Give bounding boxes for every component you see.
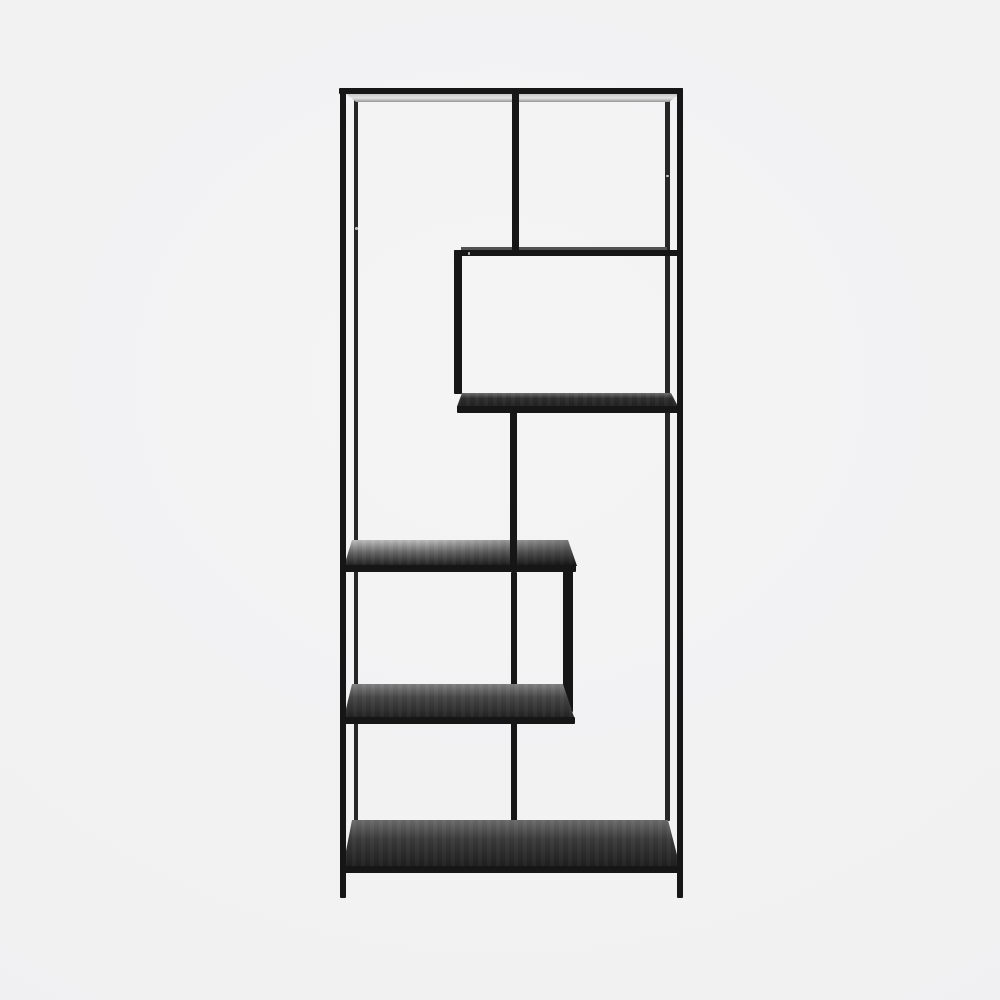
mid-middle-post [510,412,517,568]
shelf4-front-bar [343,717,575,724]
back-right-post [665,92,670,821]
product-photo [0,0,1000,1000]
shelf3-wood-top [344,540,577,566]
front-right-leg [677,88,683,898]
shelf1-front-bar [454,250,683,256]
bottom-shelf-front-bar [342,866,682,874]
shelf3-front-bar [344,565,576,572]
shelf4-wood-top [344,684,574,717]
shelf2-wood-top [457,393,678,407]
top-frame-bar [339,88,683,94]
screw-highlight [355,227,358,230]
screw-highlight [468,252,471,255]
front-left-leg [340,88,346,898]
box1-left-side-wall [454,250,462,394]
shelf2-front-bar [457,406,683,413]
screw-highlight [666,175,669,178]
mid-top-post [512,92,519,252]
bottom-shelf-wood-top [343,820,680,867]
